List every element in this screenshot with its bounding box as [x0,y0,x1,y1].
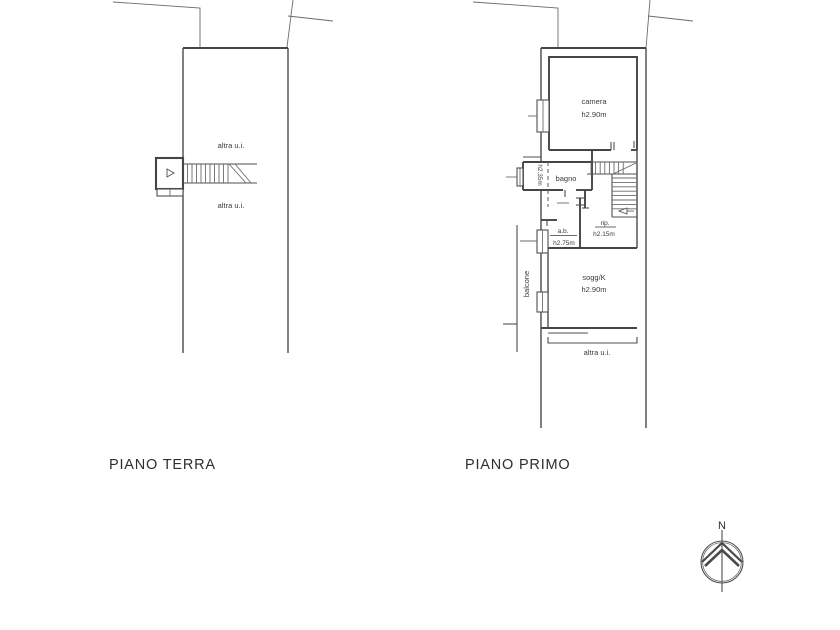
room-label-bagno: bagno [556,174,577,183]
property-boundary-lines-left [113,0,333,48]
floorplan-drawing: altra u.i. altra u.i. PIANO TERRA [0,0,840,630]
room-label-antibagno: a.b. [558,228,569,235]
balcone-window-lower [537,292,548,312]
room-label-ripostiglio: rip. [600,220,609,227]
room-height-soggiorno: h2.90m [581,285,606,294]
room-label-soggiorno: sogg/K [582,273,605,282]
plan-title-piano-primo: PIANO PRIMO [465,457,570,473]
room-label-altra-ui-upper: altra u.i. [218,141,245,150]
balcone-window-upper [520,230,548,253]
piano-terra-plan: altra u.i. altra u.i. PIANO TERRA [109,0,333,473]
room-height-niche: h2.35m [536,164,543,185]
staircase-terra [183,164,257,183]
room-height-antibagno: h2.75m [553,240,575,247]
room-label-balcone: balcone [522,271,531,297]
room-height-camera: h2.90m [581,110,606,119]
altra-ui-boundary-bracket [548,337,637,343]
property-boundary-lines-right [473,0,693,48]
north-compass: N [701,520,743,592]
room-label-altra-ui-lower: altra u.i. [218,201,245,210]
balcone-outline [503,225,517,352]
piano-primo-plan: camera h2.90m bagno h2.35m a.b. h2.75m r… [465,0,693,473]
room-label-camera: camera [581,97,607,106]
niche-window [506,168,523,186]
plan-title-piano-terra: PIANO TERRA [109,457,216,473]
room-height-ripostiglio: h2.15m [593,231,615,238]
north-label: N [718,520,726,532]
floorplan-canvas: altra u.i. altra u.i. PIANO TERRA [0,0,840,630]
camera-window [528,100,549,132]
staircase-primo [587,162,637,217]
room-label-altra-ui-right: altra u.i. [584,348,611,357]
entrance-porch [156,158,183,196]
